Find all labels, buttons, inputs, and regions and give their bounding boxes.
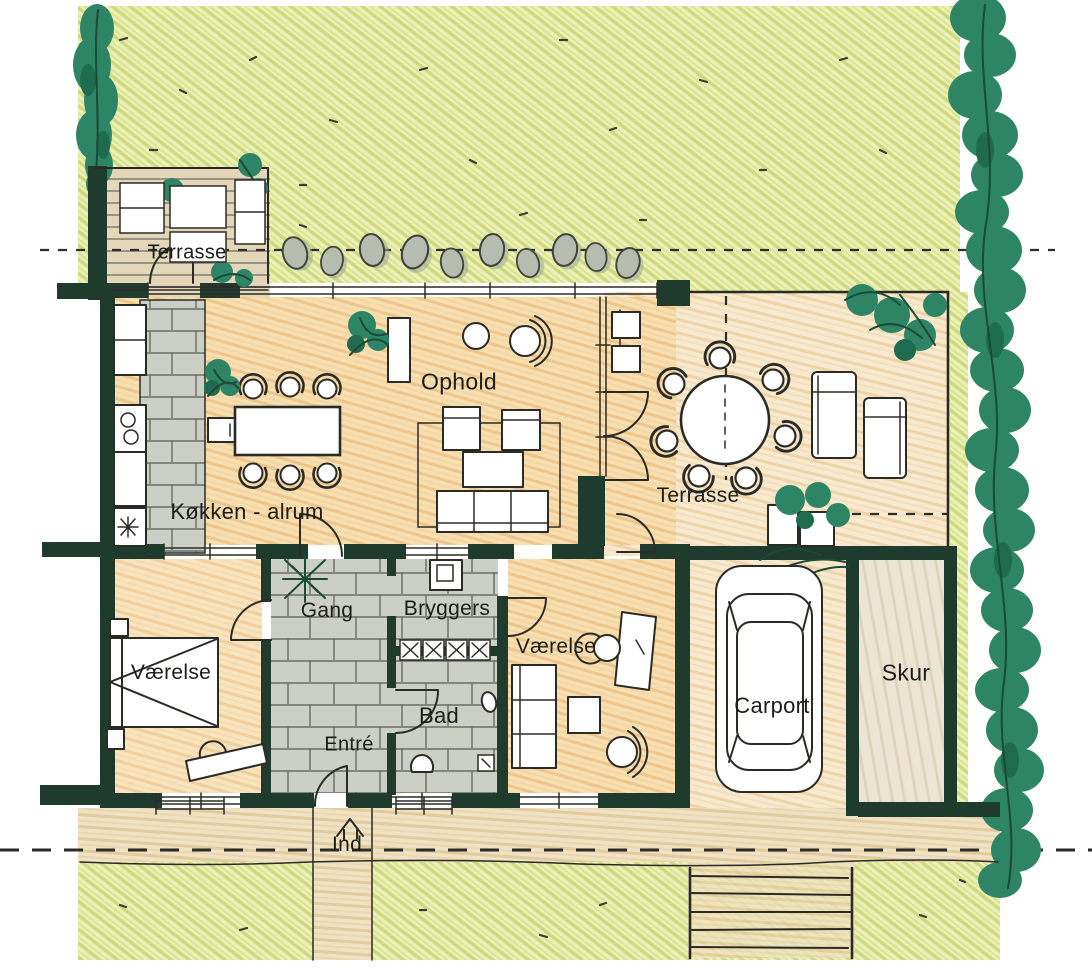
sun-lounger [864, 398, 906, 478]
entrance-path [313, 808, 372, 960]
bed [110, 638, 218, 727]
desk-chair [594, 635, 620, 661]
masonry-core [140, 300, 205, 553]
armchair [443, 407, 480, 450]
sideboard [388, 318, 410, 382]
side-table [463, 323, 489, 349]
sun-lounger [812, 372, 856, 458]
sink-icon [114, 405, 146, 452]
wardrobe [512, 665, 556, 768]
nightstand [110, 619, 128, 636]
toilet-icon [411, 755, 433, 772]
sofa [437, 491, 548, 532]
oven-icon [208, 418, 238, 442]
coffee-table [463, 452, 523, 487]
lounge-chair [607, 737, 637, 767]
small-table [568, 697, 600, 733]
terrace-side-table [612, 312, 640, 338]
skur-floor [858, 560, 946, 804]
lounge-chair [510, 326, 540, 356]
nightstand [107, 729, 124, 749]
desk [615, 612, 656, 690]
car-icon [716, 566, 822, 792]
floor-plan-drawing [0, 0, 1092, 972]
dining-table [235, 407, 340, 455]
terrace-side-table [612, 346, 640, 372]
armchair [502, 410, 540, 450]
floor-plan: Terrasse Ophold Køkken - alrum Gang Bryg… [0, 0, 1092, 972]
dining-area [235, 372, 341, 489]
